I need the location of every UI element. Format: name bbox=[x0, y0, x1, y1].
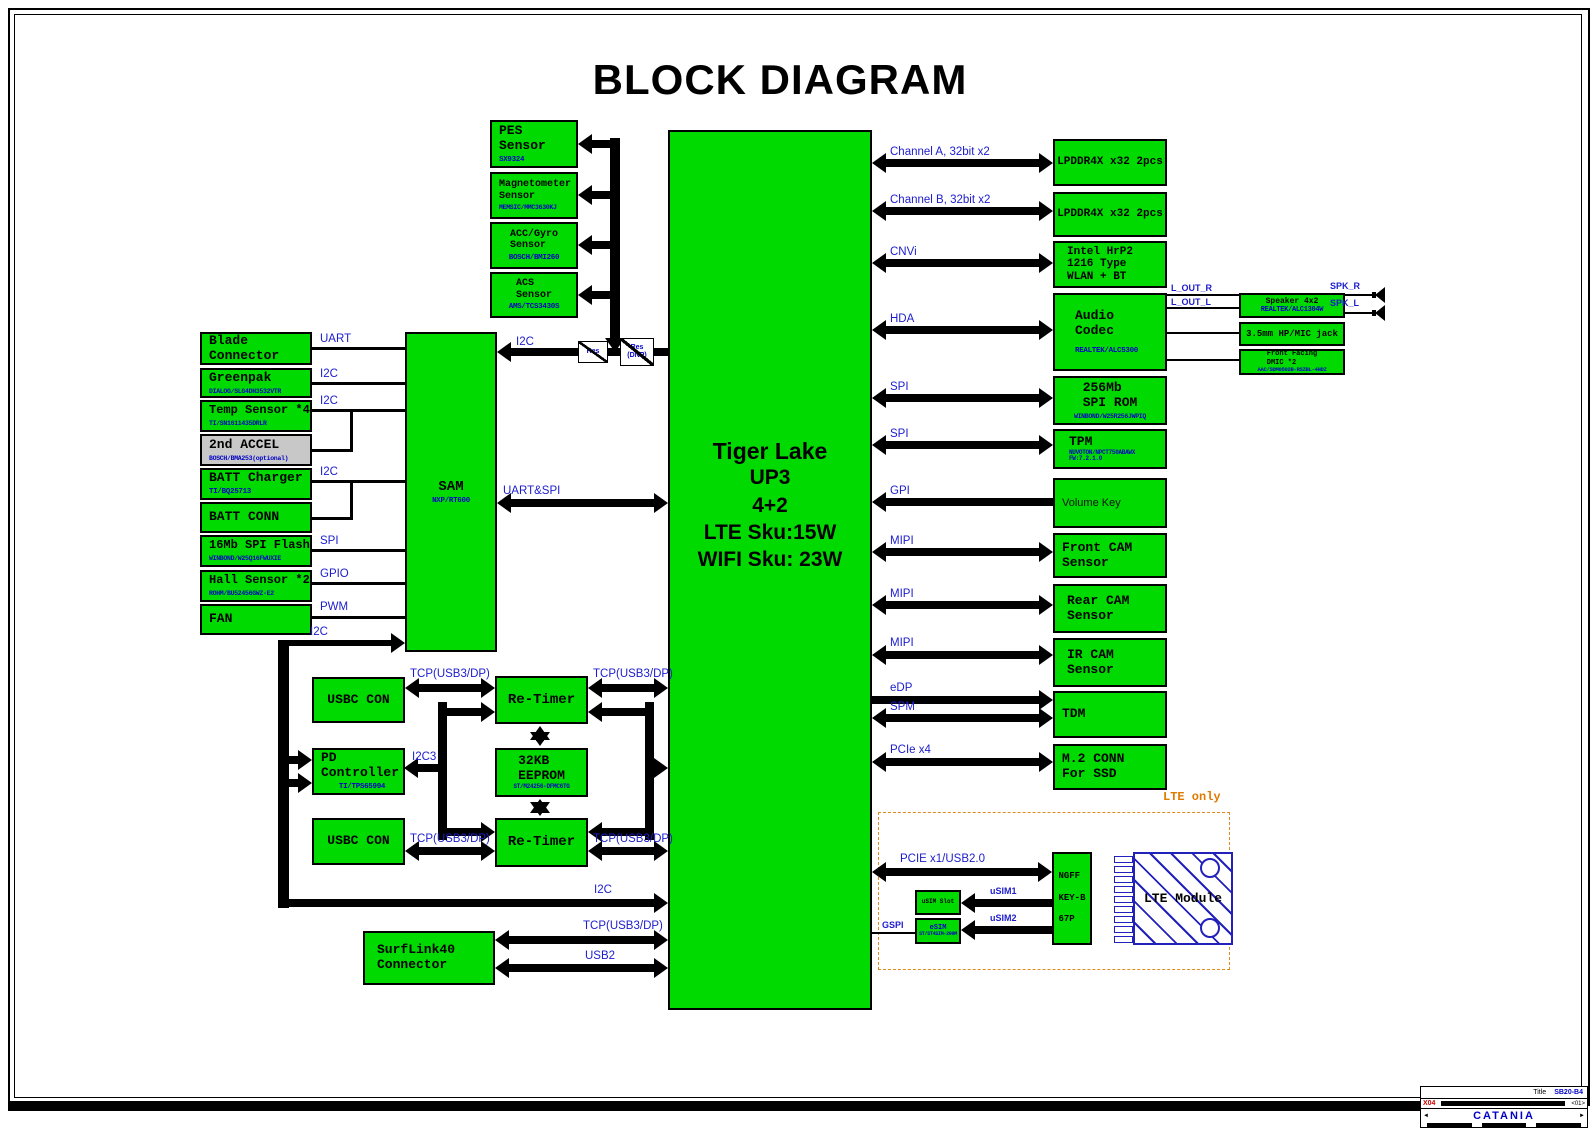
box-pd-controller: PD Controller TI/TPS65994 bbox=[312, 748, 405, 795]
arrowhead-icon bbox=[1039, 542, 1053, 562]
box-blade-connector: Blade Connector bbox=[200, 332, 312, 365]
wire bbox=[602, 708, 645, 716]
arrowhead-icon bbox=[872, 201, 886, 221]
wire-label-i2c-sam-cpu: I2C bbox=[516, 336, 534, 348]
wire-label-pwm: PWM bbox=[320, 601, 348, 613]
arrowhead-icon bbox=[1039, 435, 1053, 455]
wire bbox=[1167, 307, 1239, 309]
wire bbox=[886, 159, 1041, 167]
wire bbox=[592, 291, 620, 299]
title-block-row-rev: X04 <01> bbox=[1421, 1099, 1587, 1109]
wire-label-channel-b: Channel B, 32bit x2 bbox=[890, 194, 990, 206]
box-batt-charger: BATT Charger TI/BQ25713 bbox=[200, 468, 312, 500]
arrowhead-icon bbox=[405, 678, 419, 698]
connector-finger bbox=[1114, 896, 1133, 903]
connector-finger bbox=[1114, 866, 1133, 873]
wire-label-uart-spi: UART&SPI bbox=[503, 485, 560, 497]
wire-label-spi-rom: SPI bbox=[890, 381, 909, 393]
title-block-row-title: Title SB20-B4 bbox=[1421, 1087, 1587, 1099]
wire bbox=[509, 964, 656, 972]
arrowhead-icon bbox=[1039, 388, 1053, 408]
connector-finger bbox=[1114, 926, 1133, 933]
wire bbox=[312, 517, 352, 520]
wire-label-uart: UART bbox=[320, 333, 351, 345]
box-esim: eSIM ST/ST4SIM-200M bbox=[915, 918, 961, 944]
box-retimer-1: Re-Timer bbox=[495, 676, 588, 724]
box-usbc-con-2: USBC CON bbox=[312, 818, 405, 865]
resistor-box: Res bbox=[578, 341, 608, 363]
wire-label-usb2: USB2 bbox=[585, 950, 615, 962]
redaction-bar bbox=[1482, 1123, 1527, 1127]
arrowhead-icon bbox=[654, 893, 668, 913]
arrowhead-icon bbox=[872, 752, 886, 772]
arrowhead-icon bbox=[1039, 153, 1053, 173]
arrowhead-icon bbox=[1039, 645, 1053, 665]
box-spi-rom: 256Mb SPI ROM WINBOND/W25R256JWPIQ bbox=[1053, 376, 1167, 425]
arrowhead-icon bbox=[872, 862, 886, 882]
arrowhead-icon bbox=[872, 435, 886, 455]
wire bbox=[312, 382, 405, 385]
arrowhead-icon bbox=[1039, 201, 1053, 221]
wire bbox=[592, 241, 620, 249]
box-tdm: TDM bbox=[1053, 691, 1167, 738]
resistor-dnp-box: Res (DNP) bbox=[620, 338, 654, 366]
arrowhead-icon bbox=[872, 708, 886, 728]
arrowhead-icon bbox=[654, 758, 668, 778]
arrowhead-icon bbox=[654, 958, 668, 978]
box-2nd-accel: 2nd ACCEL BOSCH/BMA253(optional) bbox=[200, 434, 312, 466]
arrowhead-icon bbox=[588, 678, 602, 698]
wire-label-tcp1b: TCP(USB3/DP) bbox=[593, 668, 673, 680]
wire bbox=[1345, 312, 1372, 314]
arrowhead-icon bbox=[578, 185, 592, 205]
block-diagram-page: BLOCK DIAGRAM PES Sensor SX9324 Magnetom… bbox=[0, 0, 1596, 1130]
wire bbox=[438, 702, 447, 840]
lte-only-label: LTE only bbox=[1163, 790, 1221, 804]
wire bbox=[886, 868, 1038, 876]
wire bbox=[312, 449, 352, 452]
arrowhead-icon bbox=[1038, 862, 1052, 882]
wire bbox=[602, 684, 654, 692]
connector-finger bbox=[1114, 876, 1133, 883]
wire-label-gpi: GPI bbox=[890, 485, 910, 497]
wire bbox=[592, 140, 620, 148]
arrowhead-icon bbox=[578, 285, 592, 305]
arrowhead-icon bbox=[1039, 690, 1053, 710]
box-tiger-lake-cpu: Tiger Lake UP3 4+2 LTE Sku:15W WIFI Sku:… bbox=[668, 130, 872, 1010]
box-volume-key: Volume Key bbox=[1053, 478, 1167, 528]
wire-label-i2c-sam-bottom: I2C bbox=[310, 626, 328, 638]
wire bbox=[886, 394, 1041, 402]
wire-label-i2c3: I2C3 bbox=[412, 751, 436, 763]
arrowhead-icon bbox=[578, 134, 592, 154]
connector-finger bbox=[1114, 916, 1133, 923]
wire-label-spk-r: SPK_R bbox=[1330, 281, 1360, 291]
wire bbox=[312, 480, 405, 483]
wire bbox=[1167, 294, 1239, 296]
box-lpddr4x-a: LPDDR4X x32 2pcs bbox=[1053, 139, 1167, 186]
wire bbox=[886, 498, 1053, 506]
wire-label-hda: HDA bbox=[890, 313, 914, 325]
arrowhead-icon bbox=[298, 750, 312, 770]
mounting-hole-bottom bbox=[1200, 918, 1220, 938]
arrowhead-icon bbox=[1039, 320, 1053, 340]
wire bbox=[312, 409, 405, 412]
arrowhead-icon bbox=[298, 773, 312, 793]
wire bbox=[509, 936, 656, 944]
box-batt-conn: BATT CONN bbox=[200, 502, 312, 533]
wire bbox=[886, 651, 1041, 659]
wire-label-usim1: uSIM1 bbox=[990, 886, 1017, 896]
wire-label-tcp2b: TCP(USB3/DP) bbox=[593, 833, 673, 845]
box-m2-conn: M.2 CONN For SSD bbox=[1053, 744, 1167, 790]
wire-label-spi-flash: SPI bbox=[320, 535, 339, 547]
wire-label-i2c-batt: I2C bbox=[320, 466, 338, 478]
box-pes-sensor: PES Sensor SX9324 bbox=[490, 120, 578, 168]
wire bbox=[278, 640, 289, 908]
box-greenpak: Greenpak DIALOG/SLG4DH3532VTR bbox=[200, 368, 312, 398]
box-retimer-2: Re-Timer bbox=[495, 818, 588, 867]
arrowhead-icon bbox=[872, 595, 886, 615]
box-ir-cam: IR CAM Sensor bbox=[1053, 638, 1167, 687]
wire-label-i2c-greenpak: I2C bbox=[320, 368, 338, 380]
wire bbox=[1167, 332, 1239, 334]
arrowhead-icon bbox=[654, 930, 668, 950]
connector-finger bbox=[1114, 886, 1133, 893]
arrowhead-icon bbox=[872, 492, 886, 512]
wire bbox=[536, 733, 544, 741]
wire bbox=[312, 616, 405, 619]
wire bbox=[536, 804, 544, 812]
wire bbox=[975, 926, 1052, 934]
arrowhead-icon bbox=[654, 678, 668, 698]
wire-label-pcie-x1: PCIE x1/USB2.0 bbox=[900, 853, 985, 865]
wire bbox=[312, 549, 405, 552]
wire-label-cnvi: CNVi bbox=[890, 246, 917, 258]
mounting-hole-top bbox=[1200, 858, 1220, 878]
wire bbox=[419, 684, 481, 692]
box-hp-mic-jack: 3.5mm HP/MIC jack bbox=[1239, 322, 1345, 346]
redaction-bar bbox=[1441, 1101, 1565, 1106]
arrowhead-icon bbox=[872, 542, 886, 562]
box-acs-sensor: ACS Sensor AMS/TCS3430S bbox=[490, 272, 578, 318]
wire bbox=[1345, 294, 1372, 296]
arrowhead-icon bbox=[1039, 752, 1053, 772]
wire bbox=[886, 601, 1041, 609]
box-eeprom: 32KB EEPROM ST/M24256-DFMC6TG bbox=[495, 748, 588, 797]
wire bbox=[511, 499, 656, 507]
wire-label-tcp2a: TCP(USB3/DP) bbox=[410, 833, 490, 845]
arrowhead-icon bbox=[872, 320, 886, 340]
wire-label-tcp1a: TCP(USB3/DP) bbox=[410, 668, 490, 680]
page-title: BLOCK DIAGRAM bbox=[560, 56, 1000, 104]
speaker-left-icon bbox=[1372, 305, 1386, 321]
arrowhead-icon bbox=[872, 388, 886, 408]
wire-label-mipi1: MIPI bbox=[890, 535, 914, 547]
box-tpm: TPM NUVOTON/NPCT750ABAWX FW:7.2.1.0 bbox=[1053, 429, 1167, 469]
wire-label-gspi: GSPI bbox=[882, 920, 904, 930]
connector-finger bbox=[1114, 936, 1133, 943]
wire-label-channel-a: Channel A, 32bit x2 bbox=[890, 146, 990, 158]
wire-label-spi-tpm: SPI bbox=[890, 428, 909, 440]
wire bbox=[592, 191, 620, 199]
box-sam: SAM NXP/RT600 bbox=[405, 332, 497, 652]
arrowhead-icon bbox=[481, 702, 495, 722]
wire bbox=[312, 582, 405, 585]
arrowhead-icon bbox=[497, 342, 511, 362]
title-block: Title SB20-B4 X04 <01> ◄ CATANIA ► bbox=[1420, 1086, 1588, 1128]
wire-label-mipi2: MIPI bbox=[890, 588, 914, 600]
connector-finger bbox=[1114, 856, 1133, 863]
nav-right-icon: ► bbox=[1579, 1113, 1585, 1119]
wire bbox=[289, 640, 393, 646]
wire bbox=[602, 847, 654, 855]
box-usim-slot: uSIM Slot bbox=[915, 890, 961, 915]
wire-label-tcp-surflink: TCP(USB3/DP) bbox=[583, 920, 663, 932]
wire bbox=[886, 714, 1041, 722]
wire-label-mipi3: MIPI bbox=[890, 637, 914, 649]
wire bbox=[975, 899, 1052, 907]
wire bbox=[886, 207, 1041, 215]
box-temp-sensor: Temp Sensor *4 TI/SN1611435DRLR bbox=[200, 400, 312, 432]
arrowhead-icon bbox=[961, 920, 975, 940]
arrowhead-icon bbox=[588, 702, 602, 722]
box-fan: FAN bbox=[200, 604, 312, 635]
wire-label-lout-r: L_OUT_R bbox=[1171, 283, 1212, 293]
wire-label-pcie-x4: PCIe x4 bbox=[890, 744, 931, 756]
wire bbox=[312, 347, 405, 350]
arrowhead-icon bbox=[872, 645, 886, 665]
title-block-row-bars bbox=[1421, 1122, 1587, 1128]
box-surflink40: SurfLink40 Connector bbox=[363, 931, 495, 985]
wire-label-spm: SPM bbox=[890, 701, 915, 713]
arrowhead-icon bbox=[1039, 595, 1053, 615]
wire-label-edp: eDP bbox=[890, 682, 912, 694]
arrowhead-icon bbox=[872, 153, 886, 173]
arrowhead-icon bbox=[391, 633, 405, 653]
wire-label-usim2: uSIM2 bbox=[990, 913, 1017, 923]
box-dmic: Front Facing DMIC *2 AAC/SDM0502B-RSZBL-… bbox=[1239, 349, 1345, 375]
arrowhead-icon bbox=[654, 493, 668, 513]
wire bbox=[447, 708, 483, 716]
arrowhead-icon bbox=[481, 678, 495, 698]
arrowhead-icon bbox=[495, 930, 509, 950]
wire-label-i2c-temp: I2C bbox=[320, 395, 338, 407]
connector-finger bbox=[1114, 906, 1133, 913]
speaker-right-icon bbox=[1372, 287, 1386, 303]
box-lpddr4x-b: LPDDR4X x32 2pcs bbox=[1053, 192, 1167, 237]
redaction-bar bbox=[1536, 1123, 1581, 1127]
wire-label-i2c-cpu: I2C bbox=[594, 884, 612, 896]
wire bbox=[278, 899, 656, 907]
redaction-bar bbox=[1427, 1123, 1472, 1127]
box-usbc-con-1: USBC CON bbox=[312, 677, 405, 723]
wire bbox=[1167, 359, 1239, 361]
arrowhead-icon bbox=[1039, 708, 1053, 728]
box-ngff-keyb: NGFF KEY-B 67P bbox=[1052, 852, 1092, 945]
box-acc-gyro-sensor: ACC/Gyro Sensor BOSCH/BMI260 bbox=[490, 222, 578, 269]
wire bbox=[350, 410, 353, 452]
arrowhead-icon bbox=[961, 893, 975, 913]
wire bbox=[419, 847, 481, 855]
arrowhead-icon bbox=[495, 958, 509, 978]
title-block-row-project: ◄ CATANIA ► bbox=[1421, 1109, 1587, 1122]
box-audio-codec: Audio Codec REALTEK/ALC5300 bbox=[1053, 293, 1167, 371]
box-spi-flash: 16Mb SPI Flash WINBOND/W25Q16FWUXIE bbox=[200, 535, 312, 567]
arrowhead-icon bbox=[578, 235, 592, 255]
wire bbox=[886, 259, 1041, 267]
nav-left-icon: ◄ bbox=[1423, 1113, 1429, 1119]
box-magnetometer-sensor: Magnetometer Sensor MEMSIC/MMC3630KJ bbox=[490, 172, 578, 219]
wire bbox=[418, 764, 438, 772]
box-hall-sensor: Hall Sensor *2 ROHM/BU52456GWZ-E2 bbox=[200, 570, 312, 602]
box-wlan-bt: Intel HrP2 1216 Type WLAN + BT bbox=[1053, 241, 1167, 288]
wire bbox=[886, 441, 1041, 449]
wire bbox=[610, 138, 620, 338]
wire bbox=[350, 481, 353, 520]
wire bbox=[886, 326, 1041, 334]
bottom-band bbox=[8, 1101, 1588, 1111]
wire bbox=[872, 932, 915, 934]
wire bbox=[886, 758, 1041, 766]
box-front-cam: Front CAM Sensor bbox=[1053, 533, 1167, 578]
box-rear-cam: Rear CAM Sensor bbox=[1053, 584, 1167, 633]
arrowhead-icon bbox=[1039, 253, 1053, 273]
wire-label-gpio: GPIO bbox=[320, 568, 349, 580]
wire-label-spk-l: SPK_L bbox=[1330, 298, 1359, 308]
wire-label-lout-l: L_OUT_L bbox=[1171, 297, 1211, 307]
arrowhead-icon bbox=[872, 253, 886, 273]
wire bbox=[886, 548, 1041, 556]
